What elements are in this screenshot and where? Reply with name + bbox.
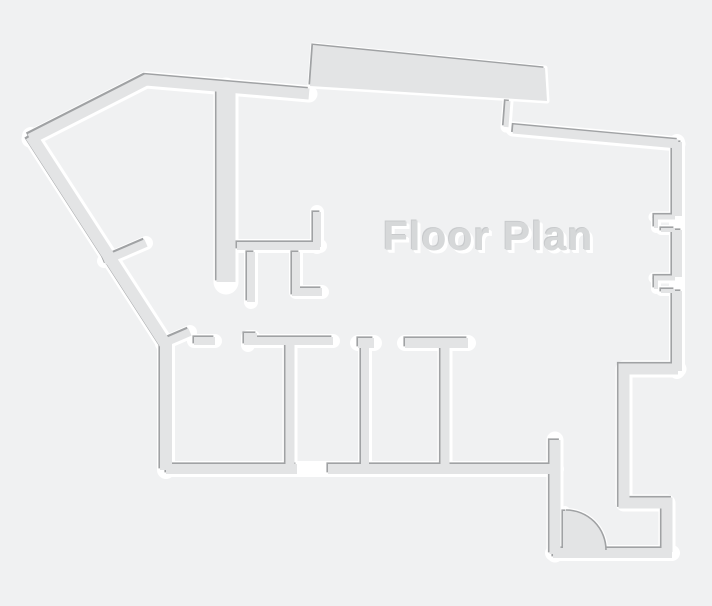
mid-wall-b-step xyxy=(248,337,333,345)
floor-plan-page: Floor Plan xyxy=(0,0,712,606)
walls-casing-layer xyxy=(30,45,678,554)
exterior-wall-left xyxy=(31,136,166,470)
floor-plan-title: Floor Plan xyxy=(383,213,593,260)
top-opening-jamb xyxy=(506,101,508,127)
top-bump-slab xyxy=(310,45,547,101)
floor-plan-drawing xyxy=(0,0,712,606)
